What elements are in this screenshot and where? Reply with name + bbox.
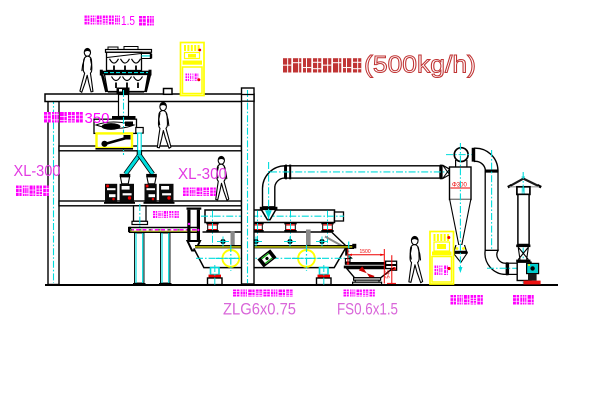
svg-text:(500kg/h): (500kg/h): [364, 52, 476, 79]
svg-text:ZLG6x0.75: ZLG6x0.75: [223, 301, 296, 319]
svg-text:1500: 1500: [360, 249, 371, 255]
svg-text:350: 350: [85, 111, 110, 127]
svg-text:FS0.6x1.5: FS0.6x1.5: [337, 301, 398, 319]
svg-text:1.5: 1.5: [121, 13, 135, 28]
svg-text:Φ300: Φ300: [452, 183, 467, 189]
svg-text:545: 545: [386, 270, 392, 279]
svg-text:XL-300: XL-300: [178, 166, 227, 183]
svg-text:XL-300: XL-300: [14, 163, 61, 180]
